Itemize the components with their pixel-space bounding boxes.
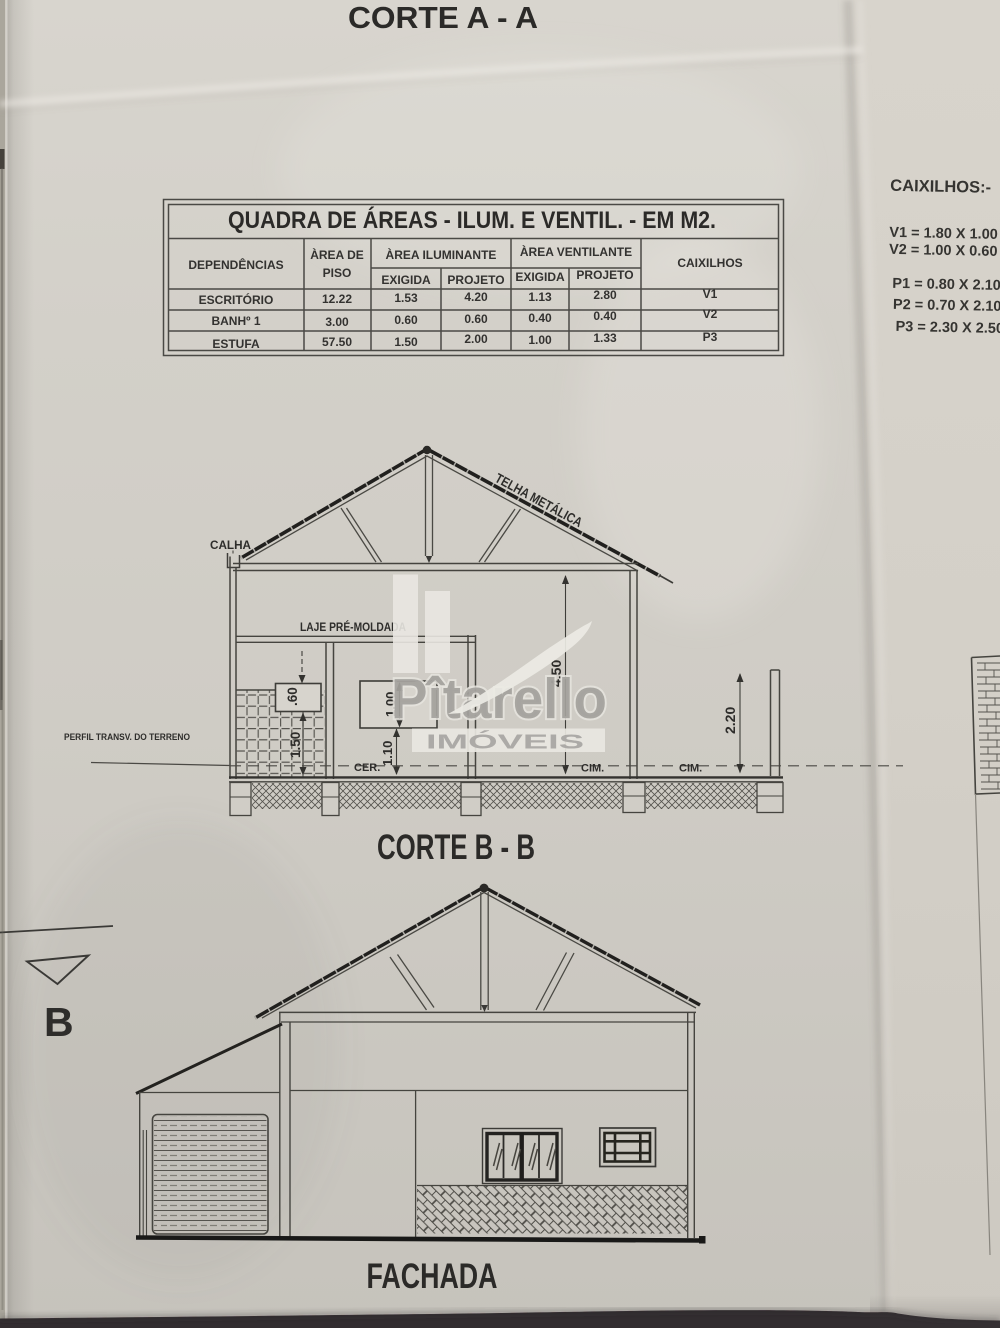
svg-text:2.80: 2.80 bbox=[593, 288, 617, 302]
svg-text:CER.: CER. bbox=[354, 762, 380, 774]
svg-text:BANHº 1: BANHº 1 bbox=[211, 314, 260, 328]
svg-text:0.60: 0.60 bbox=[394, 313, 418, 327]
svg-text:ÀREA VENTILANTE: ÀREA VENTILANTE bbox=[520, 244, 632, 259]
svg-text:PISO: PISO bbox=[323, 266, 352, 280]
svg-text:12.22: 12.22 bbox=[322, 292, 352, 306]
svg-text:0.40: 0.40 bbox=[593, 309, 617, 323]
svg-text:0.60: 0.60 bbox=[464, 312, 488, 326]
svg-text:P3 = 2.30 X 2.50: P3 = 2.30 X 2.50 bbox=[895, 319, 1000, 337]
svg-text:P3: P3 bbox=[703, 330, 718, 344]
svg-text:2.20: 2.20 bbox=[722, 707, 738, 734]
svg-text:P2 = 0.70 X 2.10: P2 = 0.70 X 2.10 bbox=[893, 297, 1000, 315]
svg-text:DEPENDÊNCIAS: DEPENDÊNCIAS bbox=[188, 257, 283, 272]
svg-text:4.20: 4.20 bbox=[464, 290, 488, 304]
svg-text:P1 = 0.80 X 2.10: P1 = 0.80 X 2.10 bbox=[892, 276, 1000, 294]
svg-text:CORTE A - A: CORTE A - A bbox=[348, 0, 538, 35]
svg-text:CIM.: CIM. bbox=[581, 763, 604, 775]
svg-text:IMÓVEIS: IMÓVEIS bbox=[426, 730, 584, 754]
svg-text:EXIGIDA: EXIGIDA bbox=[381, 273, 431, 287]
svg-text:CIM.: CIM. bbox=[679, 763, 702, 775]
svg-text:CALHA: CALHA bbox=[210, 540, 251, 552]
svg-text:3.00: 3.00 bbox=[325, 315, 349, 329]
svg-text:PERFIL TRANSV. DO TERRENO: PERFIL TRANSV. DO TERRENO bbox=[64, 732, 190, 743]
svg-text:FACHADA: FACHADA bbox=[367, 1257, 498, 1296]
svg-text:LAJE PRÉ-MOLDADA: LAJE PRÉ-MOLDADA bbox=[300, 621, 406, 634]
svg-text:ESTUFA: ESTUFA bbox=[212, 337, 260, 351]
svg-text:V2: V2 bbox=[703, 307, 718, 321]
svg-text:Pîtarello: Pîtarello bbox=[391, 667, 607, 731]
svg-text:CAIXILHOS:-: CAIXILHOS:- bbox=[890, 177, 991, 197]
svg-text:B: B bbox=[44, 999, 74, 1045]
svg-text:1.00: 1.00 bbox=[528, 333, 552, 347]
svg-text:1.10: 1.10 bbox=[380, 741, 395, 766]
svg-text:.60: .60 bbox=[285, 687, 300, 706]
svg-text:EXIGIDA: EXIGIDA bbox=[515, 270, 565, 284]
svg-text:QUADRA DE ÁREAS - ILUM. E VENT: QUADRA DE ÁREAS - ILUM. E VENTIL. - EM M… bbox=[228, 206, 716, 234]
svg-text:CORTE B - B: CORTE B - B bbox=[377, 828, 535, 867]
svg-text:V1 = 1.80 X 1.00: V1 = 1.80 X 1.00 bbox=[889, 225, 998, 243]
svg-text:1.53: 1.53 bbox=[394, 291, 418, 305]
svg-text:1.50: 1.50 bbox=[288, 732, 303, 758]
svg-text:2.00: 2.00 bbox=[464, 332, 488, 346]
svg-text:CAIXILHOS: CAIXILHOS bbox=[677, 256, 742, 270]
svg-text:57.50: 57.50 bbox=[322, 335, 352, 349]
svg-text:PROJETO: PROJETO bbox=[447, 273, 504, 287]
svg-text:ESCRITÓRIO: ESCRITÓRIO bbox=[199, 292, 274, 307]
svg-text:PROJETO: PROJETO bbox=[576, 268, 633, 282]
svg-text:ÀREA DE: ÀREA DE bbox=[310, 247, 364, 262]
svg-text:ÀREA ILUMINANTE: ÀREA ILUMINANTE bbox=[386, 247, 497, 262]
svg-text:V2 = 1.00 X 0.60: V2 = 1.00 X 0.60 bbox=[889, 242, 998, 260]
svg-text:V1: V1 bbox=[703, 287, 718, 301]
svg-text:1.33: 1.33 bbox=[593, 331, 617, 345]
svg-text:0.40: 0.40 bbox=[528, 311, 552, 325]
svg-text:1.13: 1.13 bbox=[528, 290, 552, 304]
svg-text:1.50: 1.50 bbox=[394, 335, 418, 349]
